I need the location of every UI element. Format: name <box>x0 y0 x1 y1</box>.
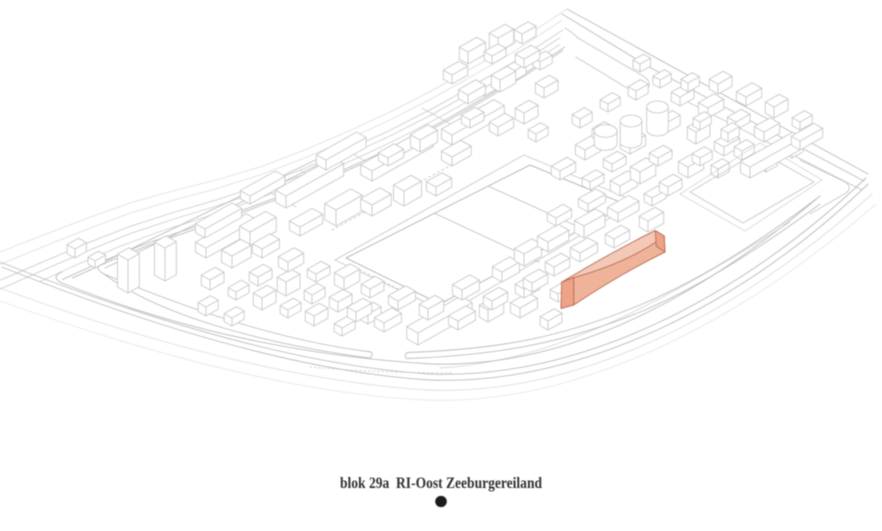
svg-text:blok 29a RI-Oost Zeeburgereil: blok 29a RI-Oost Zeeburgereiland <box>340 475 542 492</box>
